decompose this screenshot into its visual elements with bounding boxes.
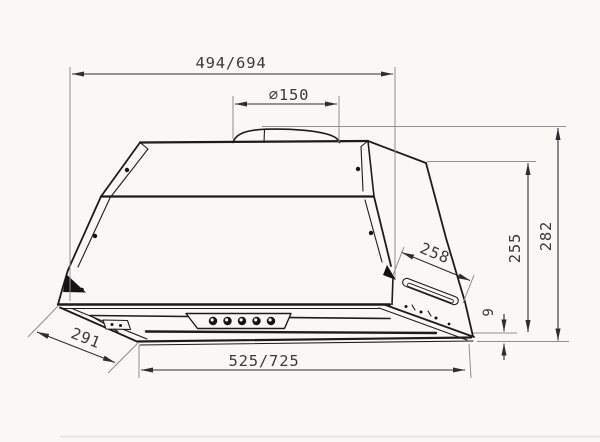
filter-latch [103,320,131,330]
left-mounting-strip [58,143,148,305]
control-panel [186,314,291,329]
bottom-panel [60,305,474,346]
technical-drawing-page: 494/694 ⌀150 255 282 9 525/725 291 258 [0,0,600,442]
dim-height-282-label: 282 [537,221,555,251]
right-mounting-strip [356,141,396,305]
dim-duct-diameter-label: ⌀150 [269,86,310,104]
dim-top-width-label: 494/694 [196,54,267,72]
dimension-labels: 494/694 ⌀150 255 282 9 525/725 291 258 [68,54,555,370]
dim-panel-depth-label: 291 [68,324,103,352]
scan-artifact [60,436,600,438]
cooker-hood-drawing: 494/694 ⌀150 255 282 9 525/725 291 258 [0,0,600,442]
handle-slot [402,277,460,306]
dim-bottom-width-label: 525/725 [229,352,300,370]
dim-height-255-label: 255 [506,233,524,263]
dim-lip-label: 9 [481,307,497,316]
hood-body-outline [58,129,474,345]
